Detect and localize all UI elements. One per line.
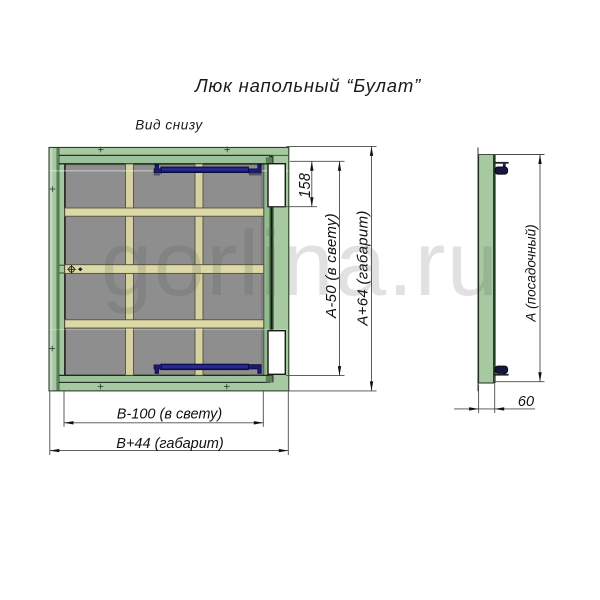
svg-text:gorlina.ru: gorlina.ru [101,213,500,315]
svg-text:60: 60 [518,394,534,410]
svg-text:Вид снизу: Вид снизу [135,118,203,133]
svg-text:А (посадочный): А (посадочный) [524,224,539,322]
svg-text:В-100 (в свету): В-100 (в свету) [117,407,222,423]
svg-text:158: 158 [296,173,314,198]
svg-text:В+44 (габарит): В+44 (габарит) [116,436,223,452]
svg-text:Люк напольный “Булат”: Люк напольный “Булат” [194,75,421,96]
